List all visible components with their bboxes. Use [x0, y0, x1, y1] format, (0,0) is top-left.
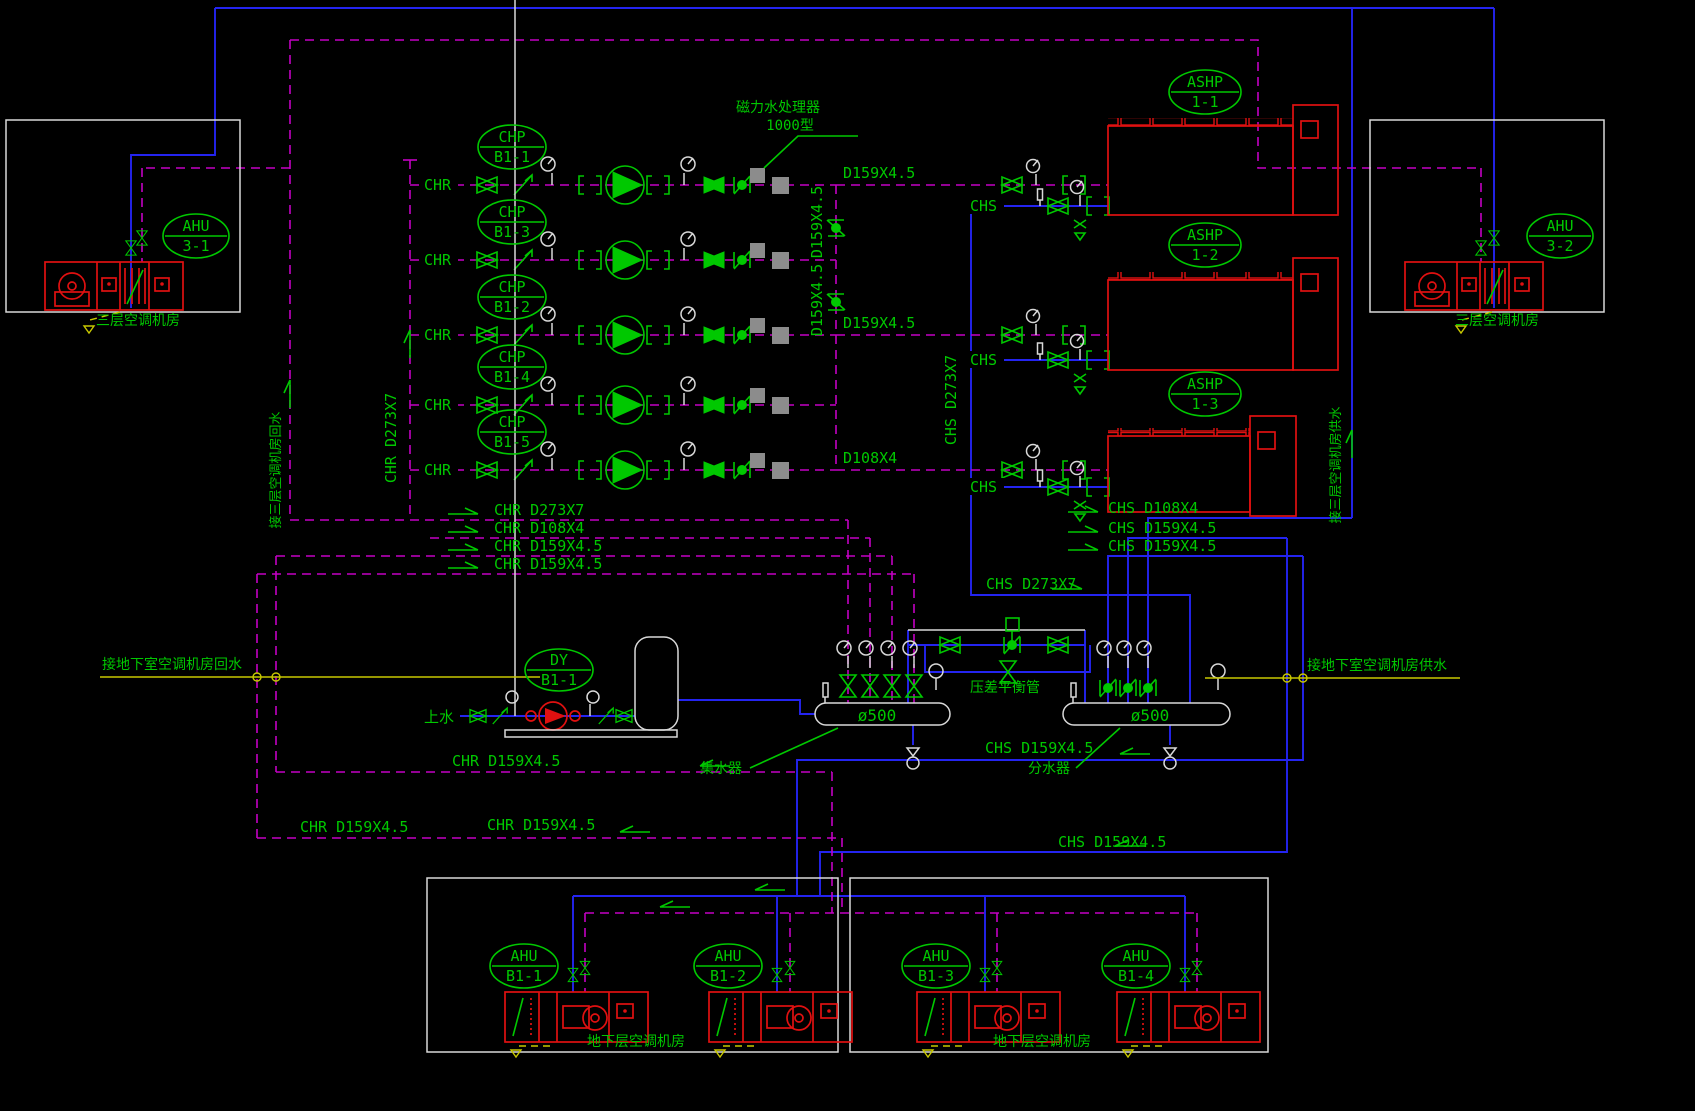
to-3f-supply: 接三层空调机房供水 — [1328, 406, 1344, 523]
svg-text:B1-2: B1-2 — [494, 298, 530, 316]
chs-b1-label-a: CHS D159X4.5 — [985, 739, 1093, 757]
chr-b1-label-c: CHR D159X4.5 — [487, 816, 595, 834]
tag-chp-b1-1: CHP B1-1 — [478, 125, 546, 169]
svg-text:ASHP: ASHP — [1187, 226, 1223, 244]
chr-label-3: CHR — [424, 326, 452, 344]
tag-ahu-b1-4: AHU B1-4 — [1102, 944, 1170, 988]
tag-chp-b1-4: CHP B1-4 — [478, 345, 546, 389]
flow-arrows — [284, 330, 1352, 907]
chs-label-1: CHS — [970, 197, 997, 215]
basement-supply-mark — [1205, 674, 1460, 682]
chs-label-3: CHS — [970, 478, 997, 496]
svg-text:AHU: AHU — [1122, 947, 1149, 965]
ashp3-chr-valves — [1002, 445, 1085, 480]
chr-label-5: CHR — [424, 461, 452, 479]
svg-text:B1-3: B1-3 — [918, 967, 954, 985]
ashp1-chr-valves — [1002, 160, 1085, 195]
row3-size: D159X4.5 — [843, 314, 915, 332]
processor-name: 磁力水处理器 — [736, 100, 820, 116]
expansion-tank — [635, 637, 678, 730]
room-3f-right-name: 三层空调机房 — [1455, 313, 1539, 329]
svg-text:B1-5: B1-5 — [494, 433, 530, 451]
to-3f-return: 接三层空调机房回水 — [268, 411, 284, 528]
to-basement-return: 接地下室空调机房回水 — [102, 656, 242, 673]
svg-text:AHU: AHU — [714, 947, 741, 965]
tag-ahu-3-2: AHU 3-2 — [1527, 214, 1593, 258]
chs-main-vertical: CHS D273X7 — [942, 355, 960, 445]
svg-text:AHU: AHU — [182, 217, 209, 235]
row5-size: D108X4 — [843, 449, 897, 467]
chs-b1-label-b: CHS D159X4.5 — [1058, 833, 1166, 851]
chr-label-4: CHR — [424, 396, 452, 414]
svg-text:CHP: CHP — [498, 413, 525, 431]
tag-ahu-b1-1: AHU B1-1 — [490, 944, 558, 988]
svg-text:1-3: 1-3 — [1191, 395, 1218, 413]
tag-ashp-1-2: ASHP 1-2 — [1169, 223, 1241, 267]
processor-model: 1000型 — [766, 118, 814, 134]
room-b1-left-name: 地下层空调机房 — [587, 1034, 685, 1050]
supply-pipes-chs — [131, 8, 1494, 992]
makeup-label: 上水 — [424, 708, 454, 726]
chr-label-1: CHR — [424, 176, 452, 194]
tag-chp-b1-2: CHP B1-2 — [478, 275, 546, 319]
chr-label-2: CHR — [424, 251, 452, 269]
schematic-canvas: CHP B1-1 CHP B1-3 CHP B1-2 CHP B1-4 CHP … — [0, 0, 1695, 1111]
ashp1-chs-valves — [1038, 181, 1110, 241]
collector-diameter: ø500 — [858, 706, 897, 725]
svg-text:B1-1: B1-1 — [541, 671, 577, 689]
pressure-balance-assembly — [940, 618, 1068, 683]
chr-main-vertical: CHR D273X7 — [382, 393, 400, 483]
hvac-schematic-drawing: CHP B1-1 CHP B1-3 CHP B1-2 CHP B1-4 CHP … — [0, 0, 1695, 1111]
distributor-name: 分水器 — [1028, 761, 1070, 777]
tag-chp-b1-5: CHP B1-5 — [478, 410, 546, 454]
chs-gather-1: CHS D108X4 — [1108, 499, 1198, 517]
chr-gather-4: CHR D159X4.5 — [494, 555, 602, 573]
room-box-3f-left — [6, 120, 240, 312]
chs-gather-3: CHS D159X4.5 — [1108, 537, 1216, 555]
chr-gather-3: CHR D159X4.5 — [494, 537, 602, 555]
to-basement-supply: 接地下室空调机房供水 — [1307, 657, 1447, 674]
tag-text: CHP — [498, 128, 525, 146]
svg-text:B1-4: B1-4 — [1118, 967, 1154, 985]
chs-main-label: CHS D273X7 — [986, 575, 1076, 593]
basement-return-mark — [100, 673, 540, 681]
room-b1-right-name: 地下层空调机房 — [993, 1034, 1091, 1050]
tag-ahu-3-1: AHU 3-1 — [163, 214, 229, 258]
riser-size-a: D159X4.5 — [808, 186, 826, 258]
svg-text:AHU: AHU — [510, 947, 537, 965]
tag-ahu-b1-2: AHU B1-2 — [694, 944, 762, 988]
chr-gather-2: CHR D108X4 — [494, 519, 584, 537]
svg-text:3-2: 3-2 — [1546, 237, 1573, 255]
svg-text:1-1: 1-1 — [1191, 93, 1218, 111]
svg-text:AHU: AHU — [1546, 217, 1573, 235]
chs-gather-2: CHS D159X4.5 — [1108, 519, 1216, 537]
svg-text:CHP: CHP — [498, 278, 525, 296]
room-box-b1-right — [850, 878, 1268, 1052]
chr-gather-1: CHR D273X7 — [494, 501, 584, 519]
collector-name: 集水器 — [700, 760, 742, 777]
tag-text: B1-1 — [494, 148, 530, 166]
svg-text:ASHP: ASHP — [1187, 375, 1223, 393]
balance-pipe-name: 压差平衡管 — [970, 680, 1040, 696]
svg-text:B1-3: B1-3 — [494, 223, 530, 241]
svg-text:3-1: 3-1 — [182, 237, 209, 255]
svg-text:CHP: CHP — [498, 348, 525, 366]
chr-b1-label-a: CHR D159X4.5 — [452, 752, 560, 770]
svg-text:1-2: 1-2 — [1191, 246, 1218, 264]
tag-ahu-b1-3: AHU B1-3 — [902, 944, 970, 988]
ashp2-chs-valves — [1038, 335, 1110, 395]
ashp-unit-1-1 — [1108, 105, 1338, 215]
ashp2-chr-valves — [1002, 310, 1085, 345]
chr-b1-label-b: CHR D159X4.5 — [300, 818, 408, 836]
svg-text:B1-4: B1-4 — [494, 368, 530, 386]
svg-text:CHP: CHP — [498, 203, 525, 221]
tag-ashp-1-3: ASHP 1-3 — [1169, 372, 1241, 416]
room-3f-left-name: 三层空调机房 — [96, 313, 180, 329]
tag-ashp-1-1: ASHP 1-1 — [1169, 70, 1241, 114]
collector-vessel — [750, 641, 950, 769]
svg-text:DY: DY — [550, 651, 568, 669]
row1-size: D159X4.5 — [843, 164, 915, 182]
svg-text:B1-1: B1-1 — [506, 967, 542, 985]
chs-label-2: CHS — [970, 351, 997, 369]
svg-text:ASHP: ASHP — [1187, 73, 1223, 91]
svg-text:AHU: AHU — [922, 947, 949, 965]
tag-chp-b1-3: CHP B1-3 — [478, 200, 546, 244]
riser-size-b: D159X4.5 — [808, 264, 826, 336]
svg-text:B1-2: B1-2 — [710, 967, 746, 985]
tag-dy-b1-1: DY B1-1 — [525, 649, 593, 691]
distributor-diameter: ø500 — [1131, 706, 1170, 725]
ashp-unit-1-2 — [1108, 258, 1338, 370]
